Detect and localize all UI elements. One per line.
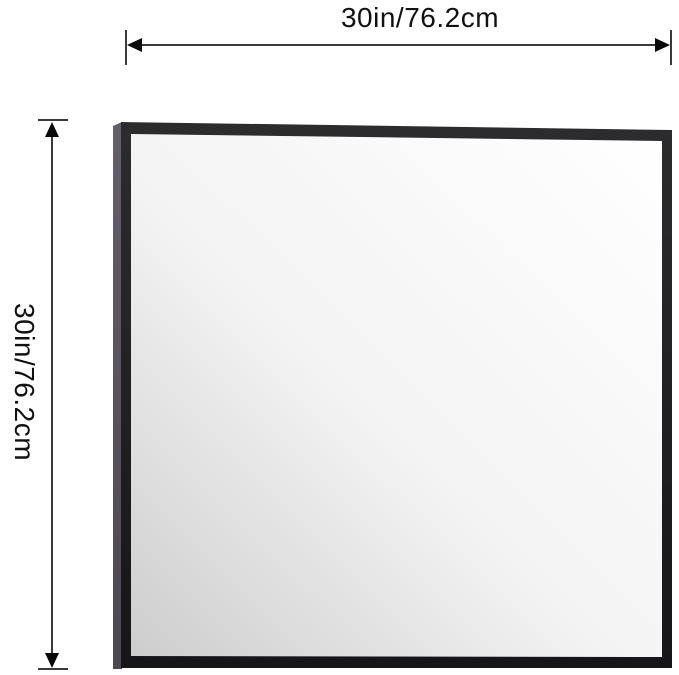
- diagram-graphics: [0, 0, 679, 675]
- mirror-frame-side-edge: [113, 122, 122, 669]
- height-arrow-up-icon: [45, 122, 59, 137]
- mirror-product: [113, 122, 672, 669]
- height-arrow-down-icon: [45, 653, 59, 668]
- width-arrow-right-icon: [655, 38, 670, 52]
- mirror-glass: [131, 134, 662, 657]
- width-arrow-left-icon: [127, 38, 142, 52]
- mirror-dimension-diagram: 30in/76.2cm 30in/76.2cm: [0, 0, 679, 675]
